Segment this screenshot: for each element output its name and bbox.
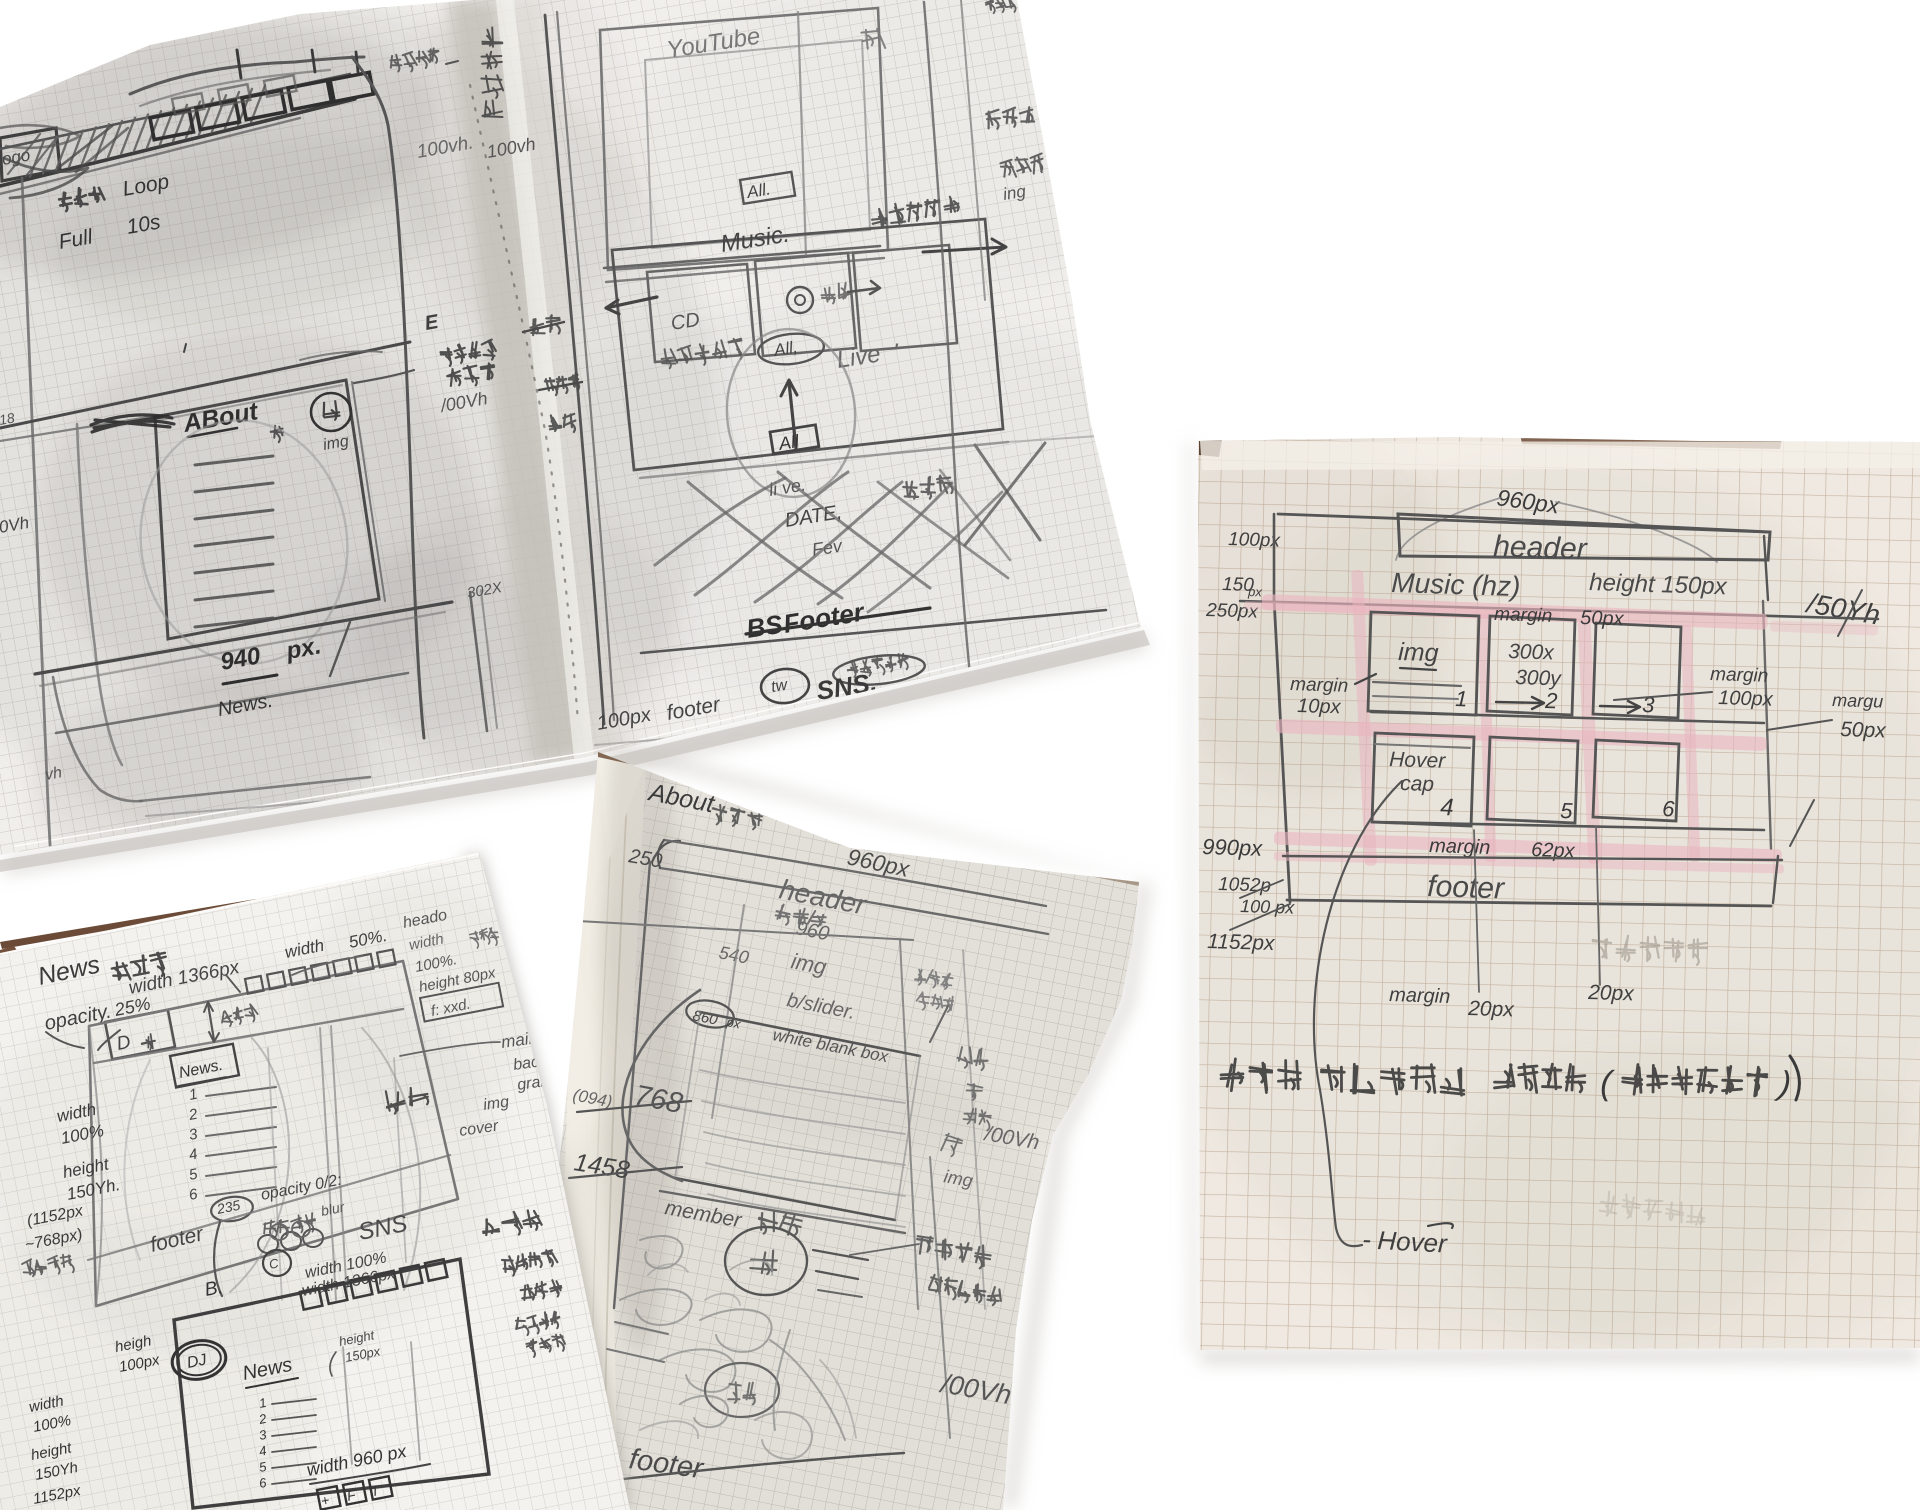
svg-text:5: 5: [1560, 798, 1574, 823]
svg-text:BS: BS: [744, 609, 785, 644]
svg-text:4: 4: [1440, 794, 1454, 821]
svg-text:margin: margin: [1290, 674, 1349, 697]
svg-text:1052p: 1052p: [1218, 874, 1271, 897]
svg-text:margu: margu: [1832, 690, 1884, 712]
svg-text:cap: cap: [1400, 772, 1435, 796]
svg-text:px: px: [1247, 584, 1263, 599]
svg-text:300y: 300y: [1515, 666, 1563, 690]
svg-text:margin: margin: [1389, 984, 1451, 1008]
svg-text:All: All: [777, 431, 802, 454]
svg-text:6: 6: [1662, 796, 1676, 821]
svg-text:footer: footer: [1427, 870, 1506, 905]
svg-text:20px: 20px: [1587, 981, 1636, 1005]
svg-text:margin: margin: [1710, 664, 1769, 687]
svg-text:1: 1: [1455, 686, 1468, 711]
svg-text:img: img: [1398, 638, 1439, 667]
svg-text:Hover: Hover: [1377, 1225, 1449, 1259]
svg-text:100px: 100px: [1718, 687, 1774, 711]
svg-text:margin: margin: [1429, 835, 1491, 859]
svg-text:All,: All,: [772, 337, 799, 360]
svg-text:header: header: [1493, 530, 1588, 566]
svg-text:Hover: Hover: [1389, 748, 1447, 773]
svg-text:20px: 20px: [1467, 997, 1516, 1021]
svg-text:50px: 50px: [1840, 718, 1888, 742]
svg-text:2: 2: [1544, 688, 1558, 713]
svg-text:10px: 10px: [1297, 695, 1342, 718]
svg-text:-: -: [1362, 1224, 1372, 1254]
svg-text:ing: ing: [1002, 182, 1028, 204]
svg-text:height 150px: height 150px: [1589, 569, 1728, 600]
svg-text:margin: margin: [1494, 604, 1553, 627]
svg-text:990px: 990px: [1202, 834, 1264, 861]
svg-text:All.: All.: [745, 179, 772, 202]
svg-text:CD: CD: [669, 309, 701, 335]
svg-text:img: img: [482, 1094, 510, 1114]
svg-text:50px: 50px: [1580, 607, 1625, 630]
svg-text:Music (hz): Music (hz): [1391, 567, 1521, 602]
svg-text:1152px: 1152px: [1207, 930, 1277, 955]
svg-text:vh: vh: [44, 764, 64, 784]
svg-text:300x: 300x: [1508, 640, 1556, 664]
